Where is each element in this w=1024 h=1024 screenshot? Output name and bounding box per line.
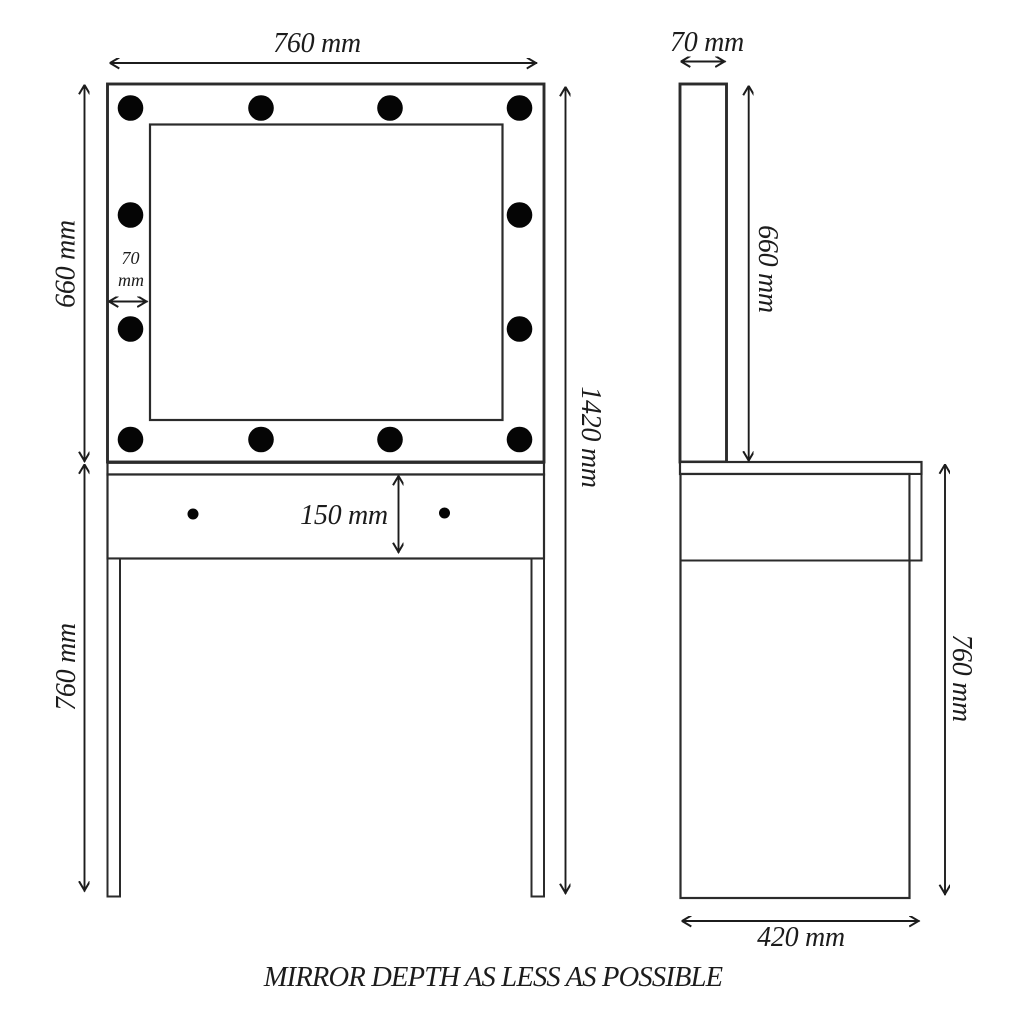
svg-text:70: 70 bbox=[122, 248, 140, 268]
svg-text:1420 mm: 1420 mm bbox=[575, 386, 606, 487]
svg-text:660 mm: 660 mm bbox=[51, 220, 82, 308]
svg-text:420 mm: 420 mm bbox=[757, 922, 845, 953]
svg-text:660 mm: 660 mm bbox=[752, 225, 783, 313]
svg-text:70 mm: 70 mm bbox=[670, 27, 744, 58]
svg-text:mm: mm bbox=[118, 270, 144, 290]
svg-text:760 mm: 760 mm bbox=[946, 634, 977, 722]
svg-text:MIRROR DEPTH AS LESS AS POSSIB: MIRROR DEPTH AS LESS AS POSSIBLE bbox=[263, 962, 723, 993]
svg-text:760 mm: 760 mm bbox=[273, 28, 361, 59]
svg-text:760 mm: 760 mm bbox=[51, 623, 82, 711]
svg-text:150 mm: 150 mm bbox=[300, 500, 388, 531]
